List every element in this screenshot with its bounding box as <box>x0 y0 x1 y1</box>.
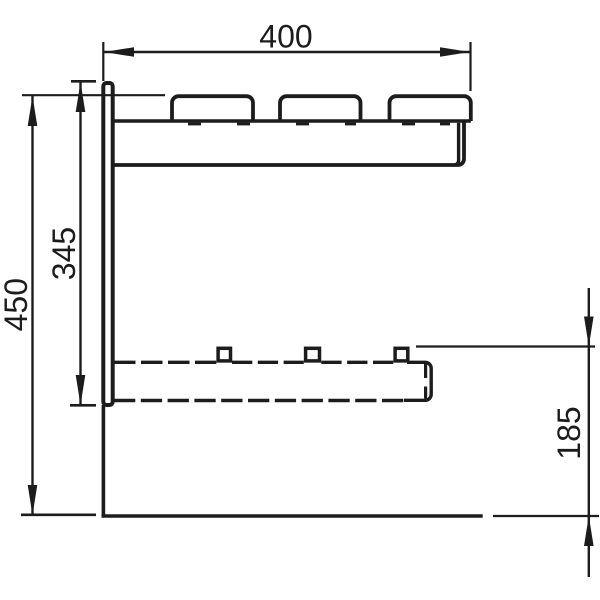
svg-text:400: 400 <box>259 19 312 55</box>
svg-text:450: 450 <box>0 278 34 331</box>
svg-text:345: 345 <box>46 227 82 280</box>
svg-text:185: 185 <box>551 406 587 459</box>
